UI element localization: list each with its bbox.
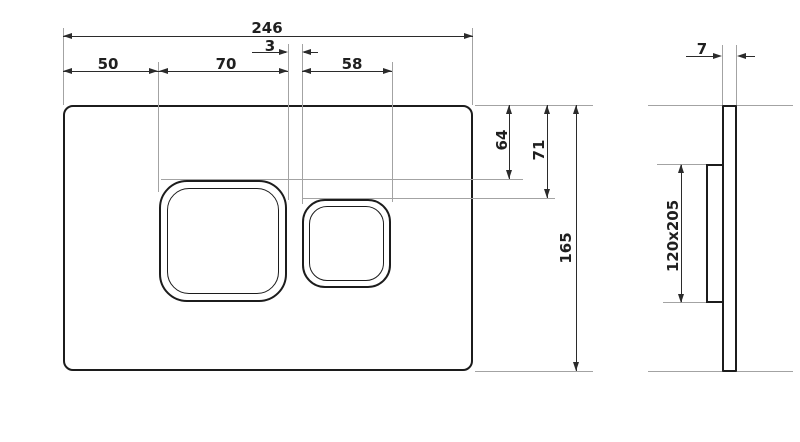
extension-line <box>158 62 159 192</box>
arrowhead <box>544 189 550 198</box>
dim-label-large-button-width: 70 <box>204 56 248 72</box>
arrowhead <box>63 68 72 74</box>
extension-line <box>288 44 289 200</box>
arrowhead <box>302 68 311 74</box>
dim-label-button-gap: 3 <box>258 38 282 54</box>
dim-label-top-to-small-button: 71 <box>531 135 547 165</box>
arrowhead <box>464 33 473 39</box>
dim-label-mounting-frame: 120x205 <box>665 196 681 276</box>
arrowhead <box>506 170 512 179</box>
arrowhead <box>713 53 722 59</box>
dim-label-overall-width: 246 <box>237 20 297 36</box>
arrowhead <box>573 105 579 114</box>
extension-line <box>722 45 723 105</box>
extension-line <box>648 371 793 372</box>
arrowhead <box>279 68 288 74</box>
dim-label-top-to-large-button: 64 <box>494 125 510 155</box>
arrowhead <box>544 105 550 114</box>
extension-line <box>475 371 593 372</box>
arrowhead <box>678 294 684 303</box>
arrowhead <box>383 68 392 74</box>
arrowhead <box>678 164 684 173</box>
extension-line <box>663 302 706 303</box>
large-flush-button-inner <box>167 188 279 294</box>
arrowhead <box>63 33 72 39</box>
arrowhead <box>737 53 746 59</box>
dim-label-thickness: 7 <box>690 41 714 57</box>
arrowhead <box>506 105 512 114</box>
extension-line <box>472 28 473 105</box>
extension-line <box>63 28 64 105</box>
dim-label-small-button-width: 58 <box>330 56 374 72</box>
arrowhead <box>159 68 168 74</box>
arrowhead <box>149 68 158 74</box>
extension-line <box>392 62 393 202</box>
technical-drawing: 246 3 50 70 58 64 71 165 <box>0 0 800 442</box>
small-flush-button-inner <box>309 206 384 281</box>
plate-profile <box>722 105 737 372</box>
dimension-line-thickness <box>746 56 755 57</box>
dimension-line-overall-height <box>576 105 577 371</box>
extension-line <box>648 105 793 106</box>
dim-label-overall-height: 165 <box>558 228 574 268</box>
dim-label-left-offset: 50 <box>86 56 130 72</box>
arrowhead <box>573 362 579 371</box>
arrowhead <box>302 49 311 55</box>
